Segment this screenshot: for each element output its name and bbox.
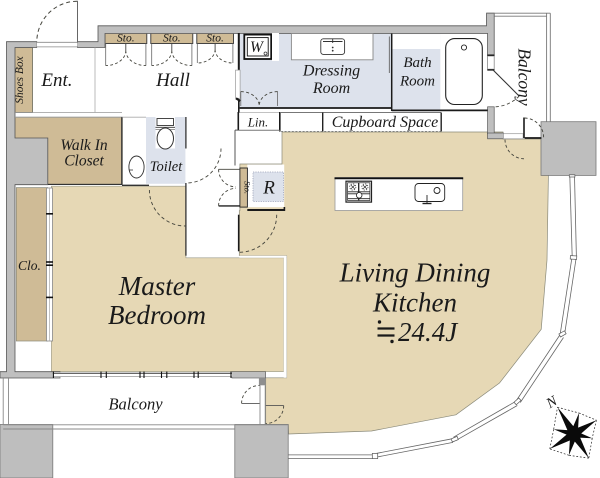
svg-text:Lin.: Lin. xyxy=(247,115,269,130)
svg-text:Clo.: Clo. xyxy=(18,258,41,273)
svg-text:Dressing: Dressing xyxy=(302,63,360,80)
svg-text:Sto.: Sto. xyxy=(117,33,135,45)
svg-text:Living Dining: Living Dining xyxy=(339,258,491,288)
svg-text:Cupboard Space: Cupboard Space xyxy=(332,114,439,131)
svg-text:Balcony: Balcony xyxy=(108,395,163,414)
svg-text:Kitchen: Kitchen xyxy=(372,288,457,318)
svg-text:R: R xyxy=(262,178,275,199)
svg-text:Bedroom: Bedroom xyxy=(108,300,206,330)
svg-text:Hall: Hall xyxy=(155,70,190,91)
svg-text:Sto.: Sto. xyxy=(163,33,181,45)
svg-text:Toilet: Toilet xyxy=(150,159,183,175)
svg-text:Sto.: Sto. xyxy=(243,181,253,194)
svg-text:Master: Master xyxy=(118,271,196,301)
svg-text:Ent.: Ent. xyxy=(40,70,72,91)
svg-text:Room: Room xyxy=(399,74,435,90)
svg-text:W: W xyxy=(250,39,265,56)
svg-text:24.4J: 24.4J xyxy=(398,317,459,347)
svg-text:Bath: Bath xyxy=(403,55,431,71)
svg-text:Closet: Closet xyxy=(64,153,104,170)
svg-text:Shoes Box: Shoes Box xyxy=(14,55,26,103)
svg-text:Sto.: Sto. xyxy=(206,33,224,45)
svg-text:Walk In: Walk In xyxy=(60,137,107,154)
svg-text:Balcony: Balcony xyxy=(515,48,535,106)
svg-text:Room: Room xyxy=(312,80,350,97)
